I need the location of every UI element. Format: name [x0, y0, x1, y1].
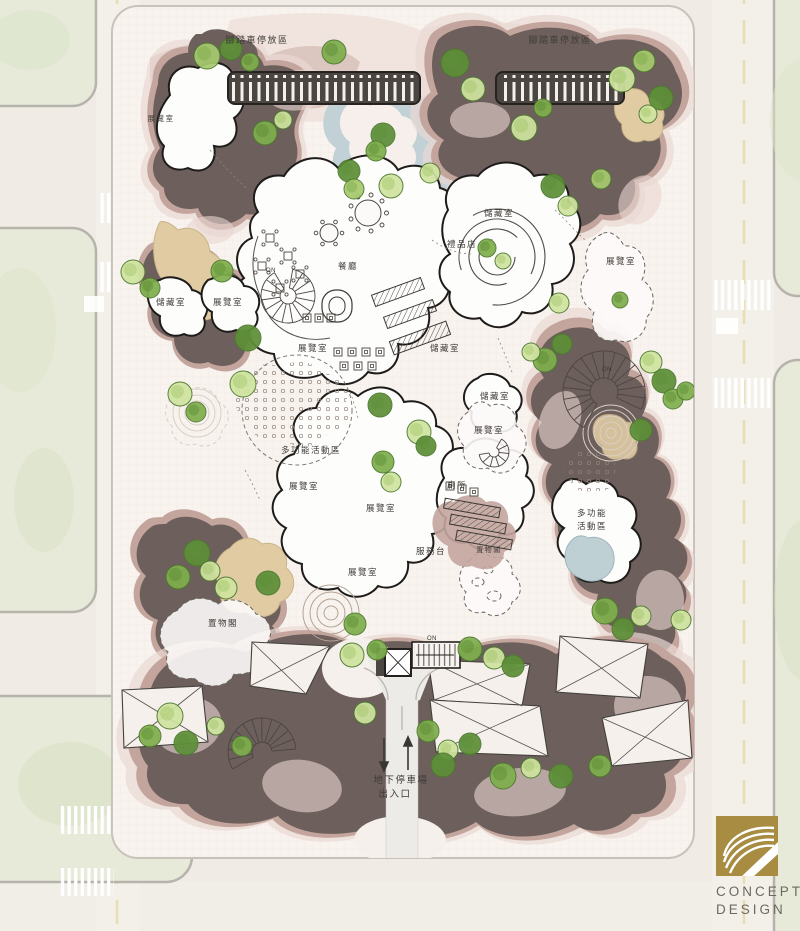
room-label: 服務台	[416, 546, 446, 556]
tree	[552, 334, 572, 354]
tree	[478, 239, 496, 257]
tree	[230, 371, 256, 397]
tree	[416, 436, 436, 456]
tree	[431, 753, 455, 777]
tree	[609, 66, 635, 92]
tree	[671, 610, 691, 630]
tree	[521, 758, 541, 778]
round-table	[355, 200, 381, 226]
tree	[502, 655, 524, 677]
tree	[511, 115, 537, 141]
room-label: 展覽室	[348, 567, 378, 577]
tree	[490, 763, 516, 789]
tree	[591, 169, 611, 189]
tree	[140, 278, 160, 298]
stair-direction-label: ON	[427, 636, 437, 642]
tree	[633, 50, 655, 72]
room-label: 儲藏室	[480, 391, 510, 401]
tree	[534, 99, 552, 117]
tree	[241, 53, 259, 71]
tree	[589, 755, 611, 777]
masterplan-drawing: 腳踏車停放區腳踏車停放區展覽室儲藏室展覽室展覽室餐廳儲藏室禮品店展覽室儲藏室儲藏…	[0, 0, 800, 931]
tree	[558, 196, 578, 216]
tree	[253, 121, 277, 145]
tree	[344, 613, 366, 635]
tree	[157, 703, 183, 729]
tree	[211, 260, 233, 282]
room-label: 展覽室	[213, 297, 243, 307]
tree	[381, 472, 401, 492]
room-label: 多功能	[577, 508, 607, 518]
room-label: 地下停車場	[373, 774, 428, 786]
tree	[256, 571, 280, 595]
tree	[186, 402, 206, 422]
tree	[549, 293, 569, 313]
room-label: 置物閣	[476, 545, 502, 554]
tree	[121, 260, 145, 284]
room-label: 出入口	[378, 788, 411, 800]
room-label: 置物閣	[208, 618, 238, 628]
room-label: 展覽室	[289, 481, 319, 491]
tree	[379, 174, 403, 198]
tree	[174, 731, 198, 755]
stair-direction-label: ON	[266, 268, 276, 274]
tree	[495, 253, 511, 269]
tree	[372, 451, 394, 473]
logo: CONCEPT DESIGN	[716, 816, 800, 917]
room-label: 腳踏車停放區	[225, 34, 288, 45]
room-label: 儲藏室	[484, 208, 514, 218]
tree	[207, 717, 225, 735]
tree	[368, 393, 392, 417]
round-table	[320, 224, 338, 242]
concept-masterplan-canvas: 腳踏車停放區腳踏車停放區展覽室儲藏室展覽室展覽室餐廳儲藏室禮品店展覽室儲藏室儲藏…	[0, 0, 800, 931]
room-label: 展覽室	[366, 503, 396, 513]
tree	[215, 577, 237, 599]
tree	[522, 343, 540, 361]
room-label: 儲藏室	[430, 343, 460, 353]
tree	[338, 160, 360, 182]
tree	[340, 643, 364, 667]
room-label: 多功能活動區	[281, 445, 341, 455]
tree	[677, 382, 695, 400]
tree	[417, 720, 439, 742]
room-label: 廁所	[447, 480, 467, 490]
room-label: 儲藏室	[156, 297, 186, 307]
room-label: 餐廳	[338, 261, 358, 271]
tree	[168, 382, 192, 406]
room-label: 展覽室	[298, 343, 328, 353]
tree	[458, 637, 482, 661]
logo-text-line2: DESIGN	[716, 902, 800, 918]
room-label: 活動區	[577, 521, 607, 531]
tree	[630, 419, 652, 441]
tree	[631, 606, 651, 626]
logo-text-line1: CONCEPT	[716, 884, 800, 900]
tree	[592, 598, 618, 624]
tree	[194, 43, 220, 69]
tree	[461, 77, 485, 101]
stair-direction-label: ON	[602, 367, 612, 373]
concept-design-logo-icon	[716, 816, 778, 876]
room-label: 禮品店	[447, 239, 477, 249]
tree	[344, 179, 364, 199]
tree	[541, 174, 565, 198]
tree	[354, 702, 376, 724]
tree	[366, 141, 386, 161]
tree	[549, 764, 573, 788]
tree	[420, 163, 440, 183]
room-label: 展覽室	[474, 425, 504, 435]
tree	[200, 561, 220, 581]
tree	[274, 111, 292, 129]
room-label: 展覽室	[148, 113, 175, 123]
tree	[441, 49, 469, 77]
tree	[612, 618, 634, 640]
tree	[459, 733, 481, 755]
tree	[322, 40, 346, 64]
tree	[612, 292, 628, 308]
tree	[367, 640, 387, 660]
tree	[166, 565, 190, 589]
room-label: 展覽室	[606, 256, 636, 266]
room-label: 腳踏車停放區	[528, 34, 591, 45]
tree	[639, 105, 657, 123]
tree	[139, 725, 161, 747]
tree	[235, 325, 261, 351]
tree	[232, 736, 252, 756]
